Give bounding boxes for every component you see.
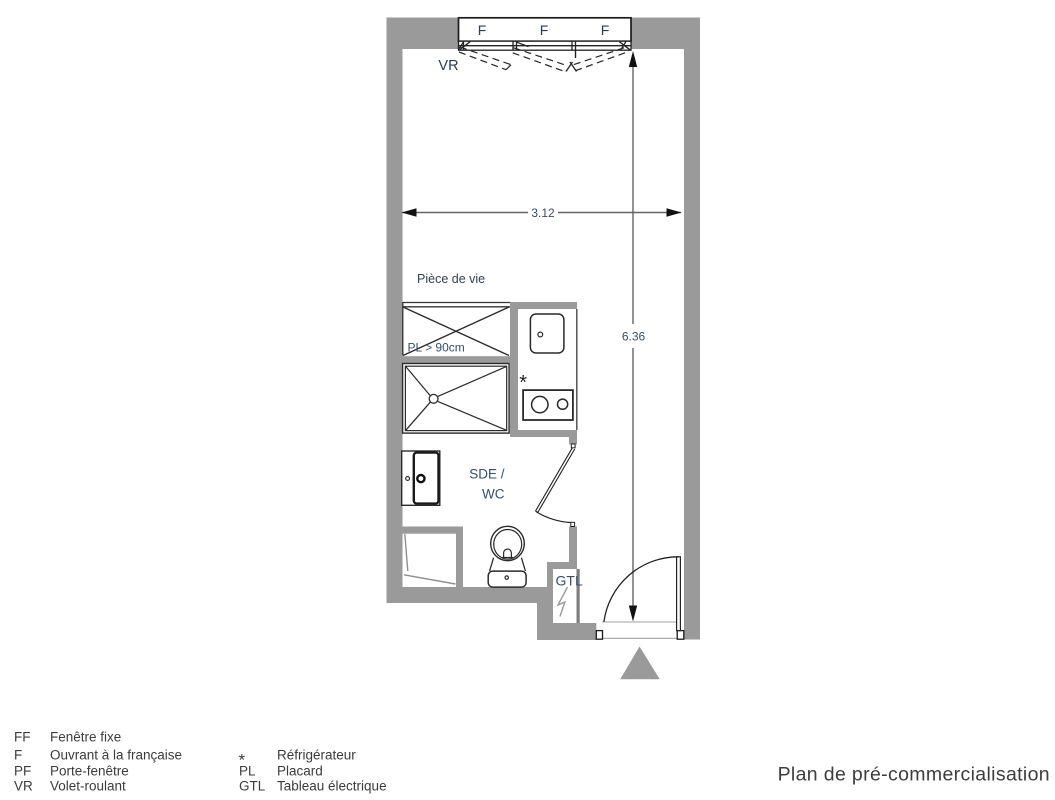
svg-text:Placard: Placard — [277, 764, 323, 779]
svg-text:VR: VR — [14, 779, 33, 794]
svg-text:PL: PL — [239, 764, 256, 779]
svg-text:SDE /: SDE / — [469, 467, 505, 482]
svg-text:3.12: 3.12 — [531, 206, 555, 220]
svg-text:F: F — [540, 22, 549, 38]
svg-text:VR: VR — [438, 58, 458, 74]
svg-text:F: F — [601, 22, 610, 38]
svg-text:F: F — [14, 748, 22, 763]
svg-text:PF: PF — [14, 764, 31, 779]
svg-text:F: F — [478, 22, 487, 38]
svg-text:Réfrigérateur: Réfrigérateur — [277, 748, 356, 763]
svg-text:GTL: GTL — [556, 573, 583, 589]
svg-text:Volet-roulant: Volet-roulant — [50, 779, 126, 794]
svg-text:FF: FF — [14, 730, 31, 745]
svg-text:Porte-fenêtre: Porte-fenêtre — [50, 764, 129, 779]
svg-text:Tableau électrique: Tableau électrique — [277, 779, 387, 794]
svg-text:Pièce de vie: Pièce de vie — [417, 272, 485, 286]
svg-text:Plan de pré-commercialisation: Plan de pré-commercialisation — [778, 764, 1050, 786]
svg-text:Fenêtre fixe: Fenêtre fixe — [50, 730, 121, 745]
svg-text:Ouvrant à la française: Ouvrant à la française — [50, 748, 182, 763]
svg-text:GTL: GTL — [239, 779, 266, 794]
svg-text:PL > 90cm: PL > 90cm — [408, 341, 465, 355]
svg-text:6.36: 6.36 — [622, 330, 646, 344]
svg-text:WC: WC — [482, 486, 505, 501]
